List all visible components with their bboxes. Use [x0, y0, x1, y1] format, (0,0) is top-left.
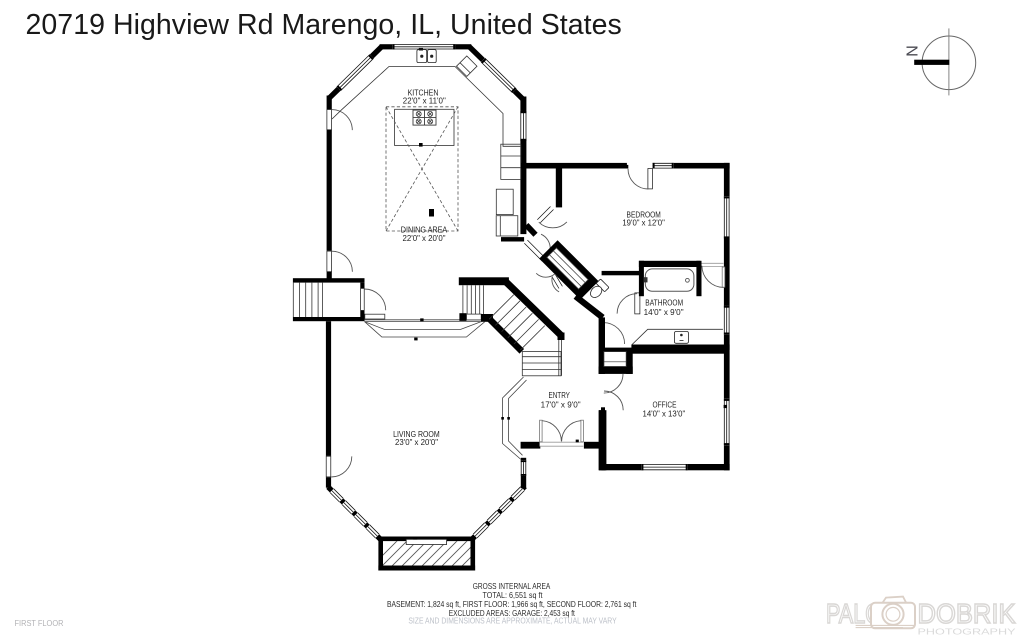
- svg-text:19'0" x 12'0": 19'0" x 12'0": [622, 219, 665, 228]
- svg-text:14'0" x 13'0": 14'0" x 13'0": [643, 410, 686, 419]
- svg-text:17'0" x 9'0": 17'0" x 9'0": [541, 400, 581, 409]
- svg-text:FIRST FLOOR: FIRST FLOOR: [15, 619, 64, 628]
- svg-text:OFFICE: OFFICE: [653, 400, 677, 409]
- svg-text:SIZE AND DIMENSIONS ARE APPROX: SIZE AND DIMENSIONS ARE APPROXIMATE, ACT…: [408, 616, 617, 626]
- svg-text:ENTRY: ENTRY: [548, 391, 570, 400]
- svg-text:N: N: [905, 45, 922, 57]
- svg-text:PHOTOGRAPHY: PHOTOGRAPHY: [918, 627, 1016, 637]
- svg-text:23'0" x 20'0": 23'0" x 20'0": [395, 438, 438, 447]
- svg-text:DOBRIK: DOBRIK: [918, 598, 1017, 629]
- svg-text:20719 Highview Rd Marengo, IL,: 20719 Highview Rd Marengo, IL, United St…: [26, 9, 622, 41]
- svg-text:22'0" x 20'0": 22'0" x 20'0": [403, 234, 446, 243]
- svg-text:BATHROOM: BATHROOM: [645, 298, 683, 307]
- svg-text:22'0" x 11'0": 22'0" x 11'0": [403, 97, 446, 106]
- svg-text:14'0" x 9'0": 14'0" x 9'0": [644, 308, 684, 317]
